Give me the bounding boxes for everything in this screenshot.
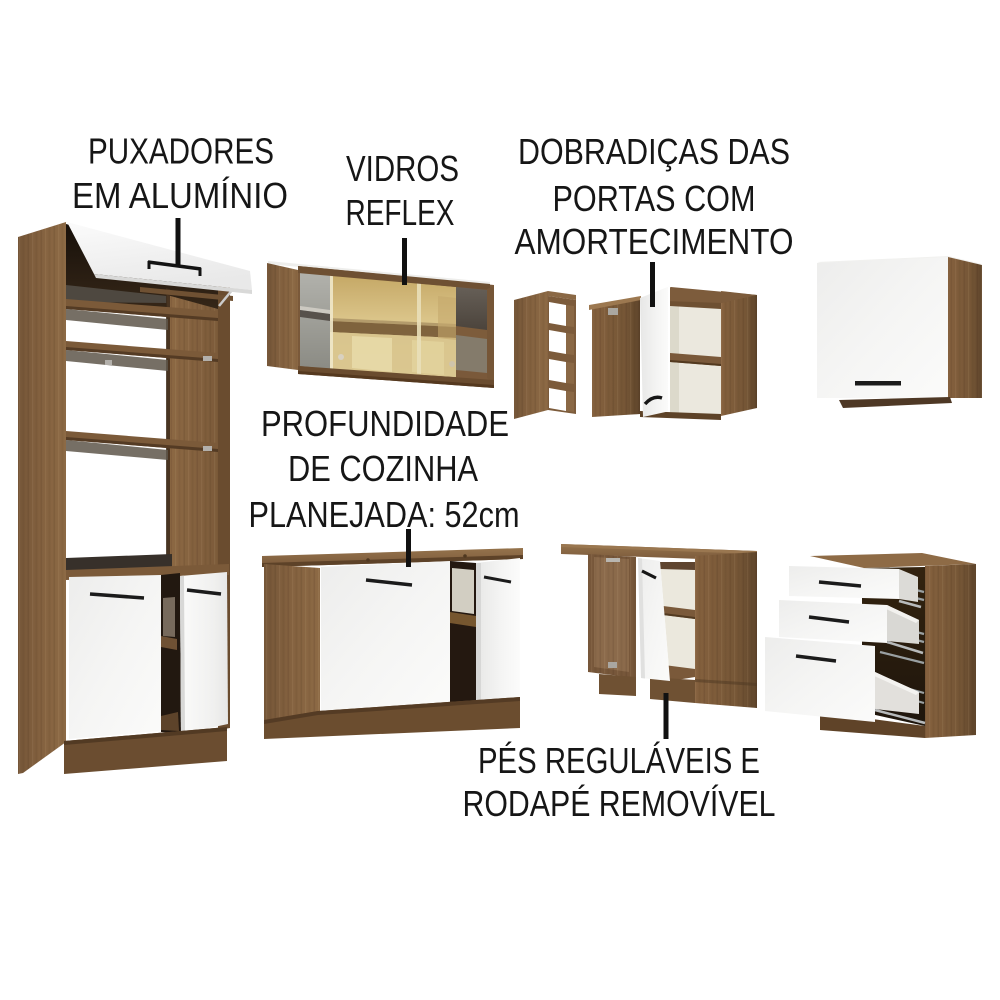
svg-text:DOBRADIÇAS DAS: DOBRADIÇAS DAS [518,131,790,172]
svg-text:PORTAS COM: PORTAS COM [553,178,756,219]
svg-text:RODAPÉ REMOVÍVEL: RODAPÉ REMOVÍVEL [463,783,776,824]
svg-text:EM ALUMÍNIO: EM ALUMÍNIO [72,175,288,216]
svg-text:PLANEJADA: 52cm: PLANEJADA: 52cm [249,494,520,535]
svg-text:DE COZINHA: DE COZINHA [288,448,478,489]
svg-text:VIDROS: VIDROS [346,148,459,189]
svg-text:PUXADORES: PUXADORES [88,131,274,172]
svg-text:PROFUNDIDADE: PROFUNDIDADE [261,403,509,444]
svg-text:AMORTECIMENTO: AMORTECIMENTO [515,221,794,262]
svg-text:PÉS REGULÁVEIS E: PÉS REGULÁVEIS E [478,740,760,781]
svg-text:REFLEX: REFLEX [346,192,455,233]
